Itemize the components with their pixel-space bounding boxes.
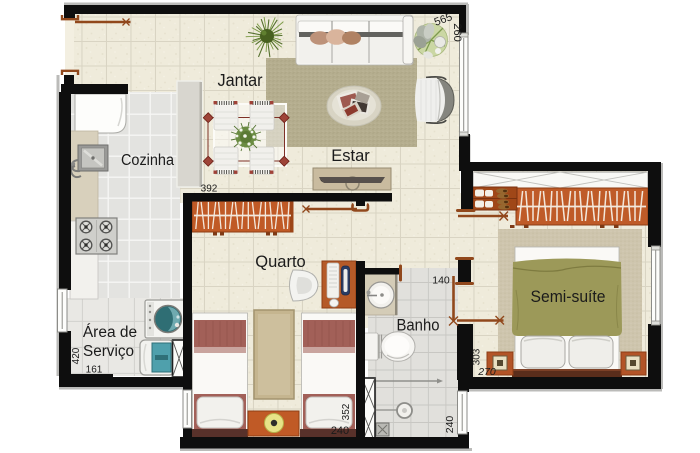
- svg-text:Quarto: Quarto: [255, 253, 305, 271]
- svg-text:352: 352: [341, 403, 352, 420]
- svg-text:240: 240: [444, 416, 456, 434]
- svg-text:240: 240: [331, 425, 349, 437]
- svg-text:420: 420: [71, 347, 82, 364]
- svg-text:392: 392: [201, 184, 218, 195]
- svg-text:Jantar: Jantar: [218, 70, 263, 90]
- svg-text:Cozinha: Cozinha: [121, 152, 174, 169]
- svg-text:Área de: Área de: [83, 324, 137, 341]
- svg-text:Serviço: Serviço: [83, 343, 134, 360]
- svg-text:Semi-suíte: Semi-suíte: [531, 288, 606, 306]
- svg-text:Estar: Estar: [331, 147, 370, 165]
- svg-text:140: 140: [432, 275, 450, 287]
- svg-text:161: 161: [86, 365, 103, 376]
- svg-text:270: 270: [477, 366, 496, 378]
- svg-text:303: 303: [472, 348, 483, 365]
- svg-text:260: 260: [451, 23, 463, 41]
- svg-text:Banho: Banho: [397, 317, 440, 335]
